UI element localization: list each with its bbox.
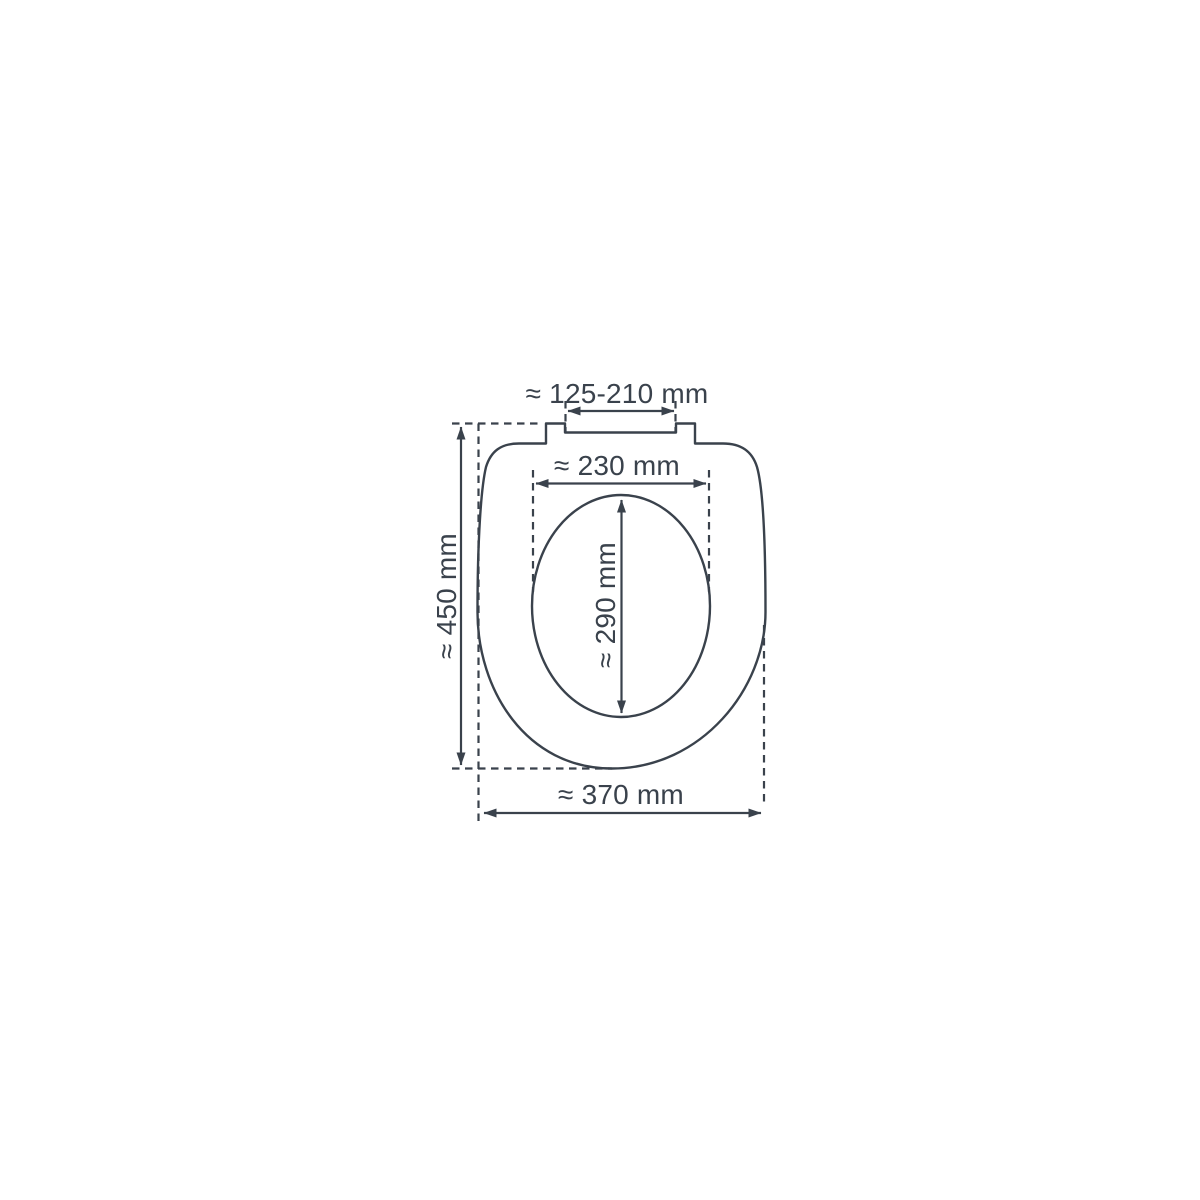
- total-length-label: ≈ 450 mm: [433, 533, 461, 659]
- dimension-diagram: ≈ 125-210 mm ≈ 230 mm ≈ 290 mm ≈ 450 mm …: [0, 0, 1200, 1200]
- inner-width-label: ≈ 230 mm: [554, 452, 680, 480]
- inner-length-label: ≈ 290 mm: [592, 542, 620, 668]
- hinge-width-label: ≈ 125-210 mm: [526, 380, 709, 408]
- outer-width-label: ≈ 370 mm: [558, 781, 684, 809]
